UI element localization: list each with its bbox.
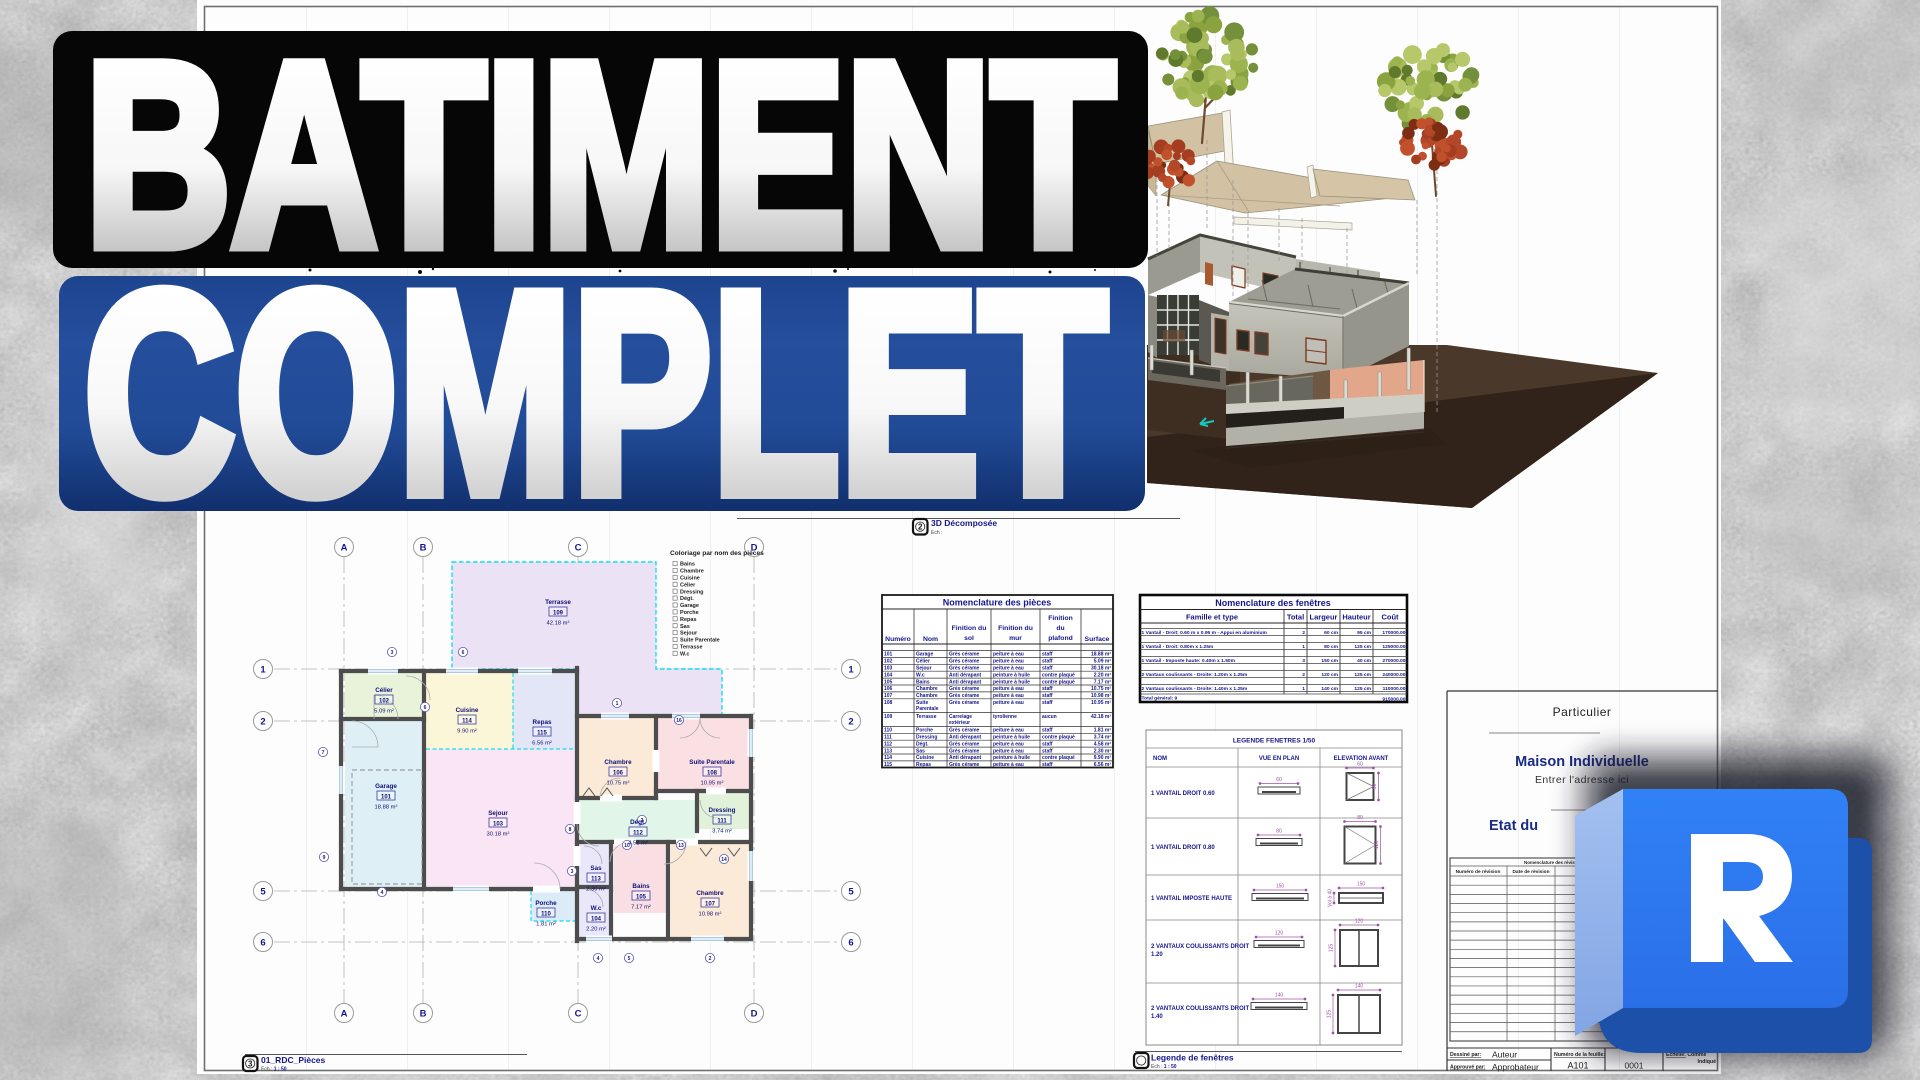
svg-text:2: 2 [1302,630,1305,636]
svg-text:plafond: plafond [1048,635,1073,642]
svg-text:staff: staff [1042,700,1053,706]
svg-text:Anti dérapant: Anti dérapant [949,755,982,761]
svg-text:40 cm: 40 cm [1357,658,1372,664]
svg-text:COMPLET: COMPLET [84,232,1107,553]
svg-text:VUE EN PLAN: VUE EN PLAN [1259,756,1299,762]
svg-text:120: 120 [1374,841,1380,850]
svg-text:1 VANTAIL DROIT 0.60: 1 VANTAIL DROIT 0.60 [1151,791,1215,797]
svg-text:Numéro: Numéro [885,636,911,643]
svg-text:Nomenclature des pièces: Nomenclature des pièces [943,598,1052,608]
svg-text:240000.00: 240000.00 [1382,672,1405,678]
svg-text:1: 1 [1302,686,1305,692]
svg-text:6: 6 [260,937,265,948]
svg-text:110000.00: 110000.00 [1383,686,1406,692]
svg-text:Grès cérame: Grès cérame [949,748,980,754]
svg-text:140 cm: 140 cm [1321,686,1338,692]
svg-text:Grès cérame: Grès cérame [949,728,980,734]
svg-text:A101: A101 [1567,1061,1588,1071]
svg-text:Finition du: Finition du [952,625,987,632]
svg-text:NOM: NOM [1153,756,1167,762]
svg-text:2.20 m²: 2.20 m² [586,927,606,933]
svg-text:2.30 m²: 2.30 m² [586,887,606,893]
svg-text:42.18 m²: 42.18 m² [1091,714,1111,720]
svg-text:staff: staff [1042,652,1053,658]
svg-text:42.18 m²: 42.18 m² [547,621,570,627]
svg-text:Garage: Garage [680,603,699,609]
svg-text:6: 6 [848,937,853,948]
svg-text:Legende de fenêtres: Legende de fenêtres [1151,1053,1234,1063]
svg-text:60: 60 [1357,762,1363,768]
svg-text:270000.00: 270000.00 [1382,658,1405,664]
svg-text:Etat du: Etat du [1489,818,1538,834]
svg-text:2.30 m²: 2.30 m² [1094,748,1112,754]
svg-text:Sas: Sas [680,624,690,630]
svg-text:1 Vantail - Droit: 0.60 m x 0.: 1 Vantail - Droit: 0.60 m x 0.95 m - App… [1142,630,1268,636]
svg-text:peinture à huile: peinture à huile [993,679,1030,685]
svg-text:1 VANTAIL IMPOSTE HAUTE: 1 VANTAIL IMPOSTE HAUTE [1151,896,1232,902]
svg-text:140: 140 [1355,984,1364,990]
svg-text:staff: staff [1042,741,1053,747]
svg-text:1.81 m²: 1.81 m² [536,922,556,928]
svg-text:106: 106 [884,686,893,692]
svg-text:7: 7 [322,750,325,756]
svg-text:5: 5 [848,886,854,897]
svg-text:2 Vantaux coulissants - Droite: 2 Vantaux coulissants - Droite: 1.20m x … [1142,672,1248,678]
svg-text:112: 112 [884,741,892,747]
svg-text:9.90 m²: 9.90 m² [457,729,477,735]
svg-text:1.81 m²: 1.81 m² [1094,728,1112,734]
svg-text:1: 1 [1302,644,1305,650]
svg-text:C: C [575,1008,582,1019]
svg-text:2: 2 [260,716,265,727]
svg-text:107: 107 [705,901,716,907]
svg-text:95 cm: 95 cm [1357,630,1372,636]
svg-text:staff: staff [1042,693,1053,699]
svg-text:Chambre: Chambre [916,693,938,699]
svg-text:110: 110 [884,728,892,734]
svg-text:90: 90 [1372,784,1378,790]
svg-text:140: 140 [1275,993,1284,999]
svg-text:170000.00: 170000.00 [1382,630,1405,636]
svg-text:peiture à eau: peiture à eau [993,728,1024,734]
svg-text:16: 16 [676,718,682,724]
svg-text:125 cm: 125 cm [1354,644,1371,650]
svg-text:18.88 m²: 18.88 m² [375,805,398,811]
svg-text:4: 4 [597,956,600,962]
svg-text:3: 3 [248,1059,253,1068]
svg-text:peiture à eau: peiture à eau [993,686,1024,692]
svg-text:115: 115 [537,730,547,736]
svg-text:staff: staff [1042,666,1053,672]
svg-text:peiture à eau: peiture à eau [993,666,1024,672]
svg-text:Grès cérame: Grès cérame [949,666,980,672]
svg-text:113: 113 [884,748,892,754]
svg-text:Bains: Bains [680,562,695,568]
svg-text:2 VANTAUX COULISSANTS DROIT: 2 VANTAUX COULISSANTS DROIT [1151,944,1249,950]
svg-text:108: 108 [707,770,718,776]
svg-text:Chambre: Chambre [696,890,724,897]
svg-text:Chambre: Chambre [680,569,704,575]
svg-text:Total général: 9: Total général: 9 [1142,696,1178,702]
svg-text:10.98 m²: 10.98 m² [699,912,722,918]
svg-text:Finition du: Finition du [998,625,1033,632]
svg-text:Porche: Porche [916,728,933,734]
svg-text:Anti dérapant: Anti dérapant [949,672,982,678]
svg-text:Bains: Bains [916,679,930,685]
svg-text:10.95 m²: 10.95 m² [1091,700,1111,706]
svg-text:Dessiné par:: Dessiné par: [1450,1052,1481,1058]
svg-text:125: 125 [1327,1010,1333,1019]
svg-text:W.c: W.c [591,905,602,912]
svg-text:1 VANTAIL DROIT 0.80: 1 VANTAIL DROIT 0.80 [1151,845,1215,851]
svg-text:6: 6 [462,650,465,656]
svg-text:5.09 m²: 5.09 m² [374,709,394,715]
svg-text:Vol à 40: Vol à 40 [1328,889,1334,907]
svg-text:1 Vantail - Imposte haute: 0.4: 1 Vantail - Imposte haute: 0.40m x 1.50m [1142,658,1236,664]
svg-text:Anti dérapant: Anti dérapant [949,679,982,685]
svg-text:1.20: 1.20 [1151,952,1163,958]
svg-text:Dressing: Dressing [916,735,937,741]
svg-text:120: 120 [1275,931,1284,937]
svg-text:Famille et type: Famille et type [1186,613,1238,622]
svg-text:3.74 m²: 3.74 m² [1094,735,1112,741]
svg-text:Finition: Finition [1048,615,1073,622]
svg-text:peiture à eau: peiture à eau [993,700,1024,706]
svg-text:peiture à eau: peiture à eau [993,741,1024,747]
svg-text:staff: staff [1042,686,1053,692]
svg-text:Suite Parentale: Suite Parentale [680,638,720,644]
svg-text:14: 14 [721,857,727,863]
svg-text:Garage: Garage [916,652,933,658]
svg-text:105: 105 [636,894,647,900]
svg-text:peinture à huile: peinture à huile [993,735,1030,741]
svg-text:Total: Total [1287,613,1304,622]
svg-text:Grès cérame: Grès cérame [949,700,980,706]
svg-text:extérieur: extérieur [949,720,970,726]
svg-text:115: 115 [884,762,892,768]
svg-text:Repas: Repas [916,762,931,768]
svg-text:W.c: W.c [916,672,925,678]
svg-text:125 cm: 125 cm [1354,672,1371,678]
svg-text:0001: 0001 [1625,1061,1644,1071]
svg-text:sol: sol [964,635,974,642]
svg-text:peiture à eau: peiture à eau [993,659,1024,665]
svg-text:Approuvé par:: Approuvé par: [1450,1065,1486,1071]
svg-text:150: 150 [1357,882,1366,888]
svg-text:915000.00: 915000.00 [1382,697,1405,703]
svg-text:113: 113 [591,876,601,882]
svg-text:60 cm: 60 cm [1324,630,1339,636]
svg-text:Nomenclature des fenêtres: Nomenclature des fenêtres [1215,598,1331,608]
svg-text:mur: mur [1009,635,1022,642]
svg-text:114: 114 [884,755,892,761]
svg-text:Sejour: Sejour [916,666,932,672]
svg-text:5.09 m²: 5.09 m² [1094,659,1112,665]
svg-text:staff: staff [1042,762,1053,768]
svg-text:125: 125 [1329,944,1335,953]
svg-text:peiture à eau: peiture à eau [993,693,1024,699]
svg-text:Surface: Surface [1085,636,1110,643]
svg-text:6: 6 [424,705,427,711]
svg-text:9: 9 [323,855,326,861]
svg-text:101: 101 [884,652,893,658]
svg-text:contre plaqué: contre plaqué [1042,672,1075,678]
svg-text:5: 5 [260,886,266,897]
svg-text:120 cm: 120 cm [1321,672,1338,678]
svg-text:Cuisine: Cuisine [456,707,479,714]
svg-text:1.40: 1.40 [1151,1014,1163,1020]
svg-text:150: 150 [1276,884,1285,890]
svg-text:1: 1 [848,664,854,675]
svg-text:Dressing: Dressing [709,807,736,814]
svg-text:Sejour: Sejour [488,810,508,817]
svg-text:30.18 m²: 30.18 m² [1091,666,1111,672]
svg-text:2.20 m²: 2.20 m² [1094,672,1112,678]
svg-text:120: 120 [1355,919,1364,925]
svg-text:105: 105 [884,679,893,685]
svg-text:107: 107 [884,693,893,699]
svg-text:B: B [420,1008,427,1019]
svg-text:Porche: Porche [535,900,557,907]
svg-text:111: 111 [884,735,892,741]
svg-text:Grès cérame: Grès cérame [949,741,980,747]
svg-text:4.58 m²: 4.58 m² [1094,741,1112,747]
svg-text:1: 1 [616,701,619,707]
svg-text:4.58 m²: 4.58 m² [628,841,648,847]
svg-text:10.75 m²: 10.75 m² [1091,686,1111,692]
svg-text:106: 106 [613,770,624,776]
svg-text:8: 8 [569,827,572,833]
svg-text:contre plaqué: contre plaqué [1042,755,1075,761]
svg-text:Grès cérame: Grès cérame [949,762,980,768]
svg-text:6.56 m²: 6.56 m² [532,741,552,747]
svg-text:contre plaqué: contre plaqué [1042,679,1075,685]
svg-text:125000.00: 125000.00 [1382,644,1405,650]
svg-text:9.90 m²: 9.90 m² [1094,755,1112,761]
svg-text:Ech : 1 : 50: Ech : 1 : 50 [1151,1064,1177,1070]
svg-text:Approbateur: Approbateur [1492,1062,1539,1072]
svg-text:80 cm: 80 cm [1324,644,1339,650]
svg-text:Sejour: Sejour [680,631,698,637]
svg-text:60: 60 [1276,777,1282,783]
svg-text:aucun: aucun [1042,714,1057,720]
svg-text:staff: staff [1042,728,1053,734]
svg-text:114: 114 [462,718,472,724]
svg-text:10.75 m²: 10.75 m² [607,781,630,787]
svg-text:104: 104 [591,916,602,922]
svg-text:Terrasse: Terrasse [680,645,703,651]
svg-text:150 cm: 150 cm [1321,658,1338,664]
svg-text:Anti dérapant: Anti dérapant [949,735,982,741]
svg-text:peinture à huile: peinture à huile [993,672,1030,678]
svg-text:7.17 m²: 7.17 m² [1094,679,1112,685]
svg-text:109: 109 [553,610,564,616]
svg-text:7.17 m²: 7.17 m² [631,905,651,911]
svg-text:staff: staff [1042,748,1053,754]
svg-text:10.95 m²: 10.95 m² [701,781,724,787]
svg-text:Repas: Repas [680,617,697,623]
svg-text:Largeur: Largeur [1310,613,1338,622]
svg-text:staff: staff [1042,659,1053,665]
svg-text:3: 3 [391,650,394,656]
svg-text:D: D [751,1008,758,1019]
svg-text:Célier: Célier [375,687,393,694]
svg-text:peiture à eau: peiture à eau [993,748,1024,754]
svg-text:102: 102 [379,698,390,704]
svg-text:Cuisine: Cuisine [680,576,700,582]
svg-text:Hauteur: Hauteur [1342,613,1370,622]
svg-text:peiture à eau: peiture à eau [993,762,1024,768]
svg-text:30.18 m²: 30.18 m² [487,832,510,838]
svg-text:104: 104 [884,672,893,678]
svg-text:110: 110 [541,911,551,917]
svg-text:6.56 m²: 6.56 m² [1094,762,1112,768]
svg-text:Grès cérame: Grès cérame [949,686,980,692]
svg-text:Terrasse: Terrasse [916,714,937,720]
svg-text:111: 111 [717,818,727,824]
svg-text:peinture à huile: peinture à huile [993,755,1030,761]
svg-text:Date de révision: Date de révision [1512,869,1549,875]
svg-text:Auteur: Auteur [1492,1050,1517,1060]
svg-text:Porche: Porche [680,610,699,616]
svg-text:4: 4 [381,890,384,896]
svg-text:2 Vantaux coulissants - Droite: 2 Vantaux coulissants - Droite: 1.40m x … [1142,686,1248,692]
svg-text:Dégt.: Dégt. [680,596,694,602]
svg-text:108: 108 [884,700,893,706]
svg-text:A: A [341,1008,348,1019]
svg-text:Nom: Nom [923,636,938,643]
svg-text:2: 2 [709,956,712,962]
svg-text:Chambre: Chambre [916,686,938,692]
svg-text:Sas: Sas [590,865,602,872]
svg-text:101: 101 [381,794,392,800]
svg-text:80: 80 [1357,815,1363,821]
svg-text:peiture à eau: peiture à eau [993,652,1024,658]
svg-text:LEGENDE FENETRES 1/50: LEGENDE FENETRES 1/50 [1233,738,1316,745]
svg-text:W.c: W.c [680,651,689,657]
svg-text:Ech : 1 : 50: Ech : 1 : 50 [261,1067,287,1073]
svg-text:Dégt.: Dégt. [916,741,929,747]
svg-text:du: du [1056,625,1064,632]
svg-text:13: 13 [678,843,684,849]
svg-text:Célier: Célier [680,582,696,588]
svg-text:Cuisine: Cuisine [916,755,934,761]
svg-text:109: 109 [884,714,893,720]
svg-text:Chambre: Chambre [604,759,632,766]
svg-text:10.98 m²: 10.98 m² [1091,693,1111,699]
svg-text:Grès cérame: Grès cérame [949,652,980,658]
svg-text:Bains: Bains [632,883,650,890]
svg-text:Dégt.: Dégt. [630,819,646,826]
svg-text:contre plaqué: contre plaqué [1042,735,1075,741]
svg-text:1 Vantail - Droit: 0.80m x 1.2: 1 Vantail - Droit: 0.80m x 1.25m [1142,644,1214,650]
svg-text:Repas: Repas [533,719,552,726]
svg-text:Particulier: Particulier [1553,705,1612,719]
svg-text:5: 5 [628,956,631,962]
svg-text:Terrasse: Terrasse [545,599,571,606]
svg-text:3: 3 [1302,658,1305,664]
svg-text:18.88 m²: 18.88 m² [1091,652,1111,658]
svg-text:103: 103 [884,666,893,672]
svg-text:Grès cérame: Grès cérame [949,659,980,665]
svg-text:Garage: Garage [375,783,397,790]
svg-text:01_RDC_Pièces: 01_RDC_Pièces [261,1055,326,1065]
svg-text:2: 2 [1302,672,1305,678]
svg-text:2: 2 [848,716,853,727]
svg-text:1: 1 [260,664,266,675]
svg-text:Grès cérame: Grès cérame [949,693,980,699]
svg-text:112: 112 [633,830,643,836]
svg-text:Parentale: Parentale [916,706,939,712]
svg-text:Célier: Célier [916,659,930,665]
svg-text:102: 102 [884,659,893,665]
svg-text:3: 3 [571,869,574,875]
svg-text:2 VANTAUX COULISSANTS DROIT: 2 VANTAUX COULISSANTS DROIT [1151,1006,1249,1012]
svg-text:103: 103 [493,821,504,827]
svg-text:Indiqué: Indiqué [1698,1059,1717,1065]
svg-text:Numéro de révision: Numéro de révision [1456,869,1501,875]
svg-text:Coût: Coût [1381,613,1399,622]
svg-text:Sas: Sas [916,748,925,754]
svg-text:125 cm: 125 cm [1354,686,1371,692]
svg-text:Suite Parentale: Suite Parentale [689,759,735,766]
svg-text:80: 80 [1276,829,1282,835]
svg-text:3.74 m²: 3.74 m² [712,829,732,835]
svg-text:Dressing: Dressing [680,589,704,595]
svg-text:tyrolienne: tyrolienne [993,714,1017,720]
